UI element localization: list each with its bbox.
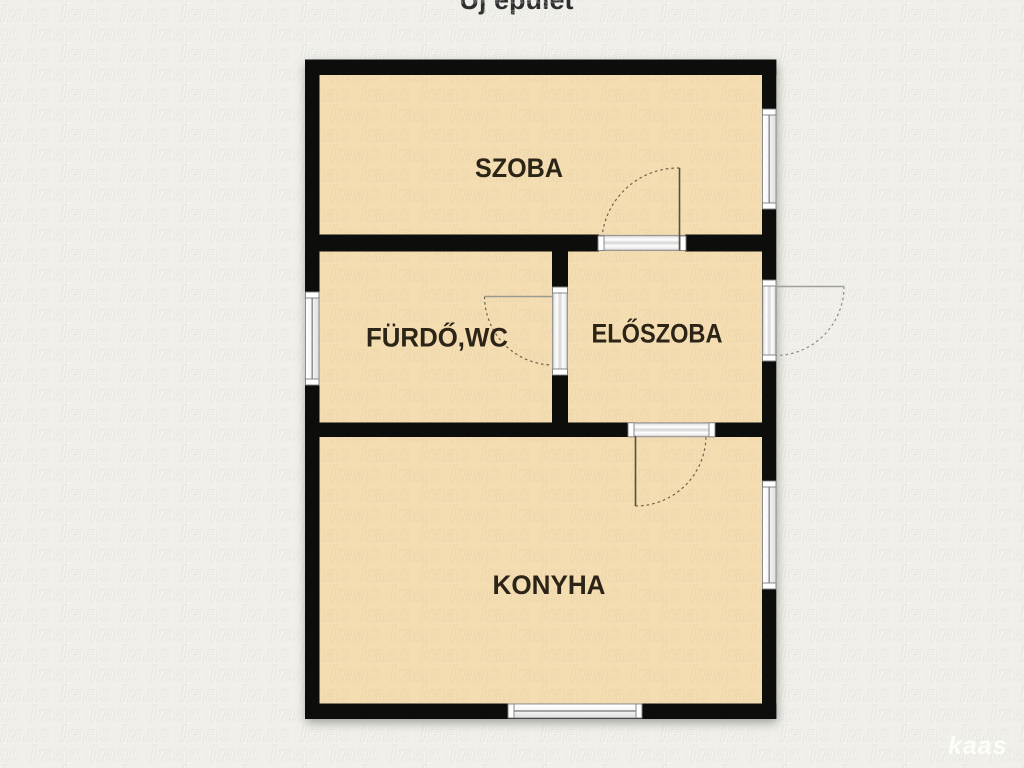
svg-text:KONYHA: KONYHA [493,570,606,600]
svg-text:ELŐSZOBA: ELŐSZOBA [592,318,723,349]
svg-text:FÜRDŐ,WC: FÜRDŐ,WC [366,322,508,353]
svg-text:SZOBA: SZOBA [475,153,563,183]
